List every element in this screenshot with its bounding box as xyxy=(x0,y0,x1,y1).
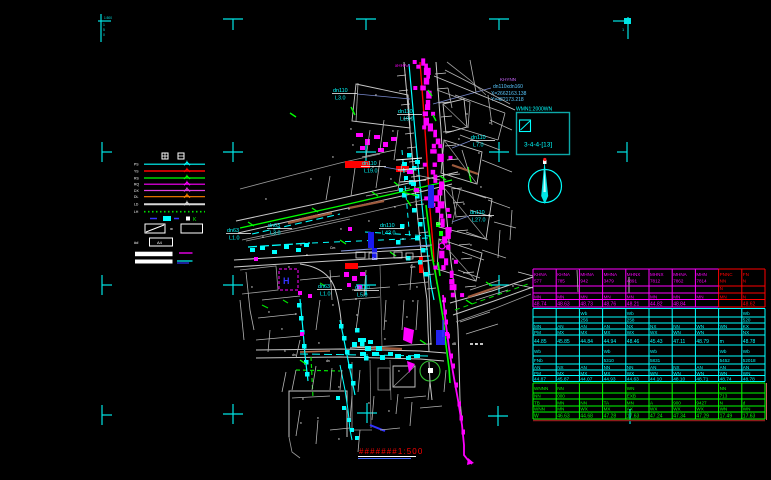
svg-text:Cm: Cm xyxy=(330,246,335,250)
svg-text:NX: NX xyxy=(627,324,633,329)
svg-text:x: x xyxy=(470,243,472,247)
svg-text:44.94: 44.94 xyxy=(604,339,617,345)
svg-text:dn63: dn63 xyxy=(318,284,330,290)
svg-text:5: 5 xyxy=(103,28,105,32)
svg-text:x: x xyxy=(302,397,304,401)
svg-text:942: 942 xyxy=(580,279,588,284)
svg-text:1: 1 xyxy=(103,23,105,27)
svg-text:48.71: 48.71 xyxy=(696,376,708,382)
svg-text:Wb: Wb xyxy=(720,349,727,354)
svg-text:L5.0: L5.0 xyxy=(357,293,368,299)
svg-text:PNNC: PNNC xyxy=(720,272,734,277)
svg-text:WN: WN xyxy=(720,407,728,412)
svg-text:577: 577 xyxy=(534,279,542,284)
svg-text:WX: WX xyxy=(650,330,657,335)
svg-text:AN: AN xyxy=(696,365,702,370)
svg-text:PS: PS xyxy=(134,163,139,167)
svg-text:WN: WN xyxy=(627,386,635,391)
svg-text:AN: AN xyxy=(580,324,586,329)
svg-text:x: x xyxy=(288,265,290,269)
svg-text:WX: WX xyxy=(673,407,680,412)
svg-text:x: x xyxy=(306,253,308,257)
svg-text:x: x xyxy=(394,205,396,209)
svg-text:dn110: dn110 xyxy=(355,285,370,291)
svg-text:MX: MX xyxy=(557,330,564,335)
svg-text:DL: DL xyxy=(134,195,138,199)
svg-text:NN: NN xyxy=(673,324,680,329)
svg-text:dn: dn xyxy=(326,359,330,363)
svg-text:x: x xyxy=(402,237,404,241)
svg-text:NX: NX xyxy=(673,365,679,370)
svg-text:AX: AX xyxy=(627,407,633,412)
svg-text:x: x xyxy=(458,137,460,141)
svg-text:dn63: dn63 xyxy=(268,223,280,229)
svg-text:520: 520 xyxy=(743,318,751,323)
svg-text:W: W xyxy=(534,414,539,420)
svg-text:48.21: 48.21 xyxy=(627,302,640,308)
svg-text:Wb: Wb xyxy=(650,349,657,354)
svg-text:44.93: 44.93 xyxy=(604,376,616,382)
svg-text:x: x xyxy=(330,279,332,283)
svg-text:256: 256 xyxy=(580,318,588,323)
svg-text:=: = xyxy=(170,227,173,233)
svg-text:MHNX: MHNX xyxy=(627,272,641,277)
svg-text:MN: MN xyxy=(696,295,703,300)
svg-text:WN: WN xyxy=(696,371,704,376)
svg-text:44.68: 44.68 xyxy=(580,414,593,420)
svg-text:44.07: 44.07 xyxy=(580,376,592,382)
svg-text:x: x xyxy=(317,416,319,420)
svg-text:N: N xyxy=(720,401,723,406)
svg-text:WN: WN xyxy=(720,371,728,376)
svg-text:NN: NN xyxy=(604,365,611,370)
svg-text:x: x xyxy=(406,315,408,319)
svg-text:x: x xyxy=(352,143,354,147)
svg-text:44.82: 44.82 xyxy=(650,302,663,308)
svg-text:NX: NX xyxy=(650,324,656,329)
svg-text:dn110: dn110 xyxy=(380,223,395,229)
svg-text:47.34: 47.34 xyxy=(673,414,686,420)
svg-text:x: x xyxy=(318,341,320,345)
svg-text:48.63: 48.63 xyxy=(557,302,570,308)
svg-text:MX: MX xyxy=(604,330,611,335)
svg-text:AN: AN xyxy=(580,365,586,370)
svg-text:WX: WX xyxy=(696,407,703,412)
svg-text:47.11: 47.11 xyxy=(673,339,685,345)
svg-text:5310: 5310 xyxy=(604,358,615,363)
svg-text:7862: 7862 xyxy=(673,279,684,284)
svg-text:46.63: 46.63 xyxy=(557,414,570,420)
svg-text:x: x xyxy=(475,342,477,346)
svg-text:KHNA: KHNA xyxy=(534,272,548,277)
svg-text:9427: 9427 xyxy=(696,401,707,406)
svg-text:PM: PM xyxy=(534,371,541,376)
svg-text:MN: MN xyxy=(627,295,634,300)
svg-text:YS: YS xyxy=(134,170,139,174)
svg-text:L19.0: L19.0 xyxy=(364,169,378,175)
svg-text:900: 900 xyxy=(673,401,681,406)
svg-text:N: N xyxy=(743,279,746,284)
svg-text:NN: NN xyxy=(720,386,727,391)
svg-text:MN: MN xyxy=(557,407,564,412)
svg-text:17.63: 17.63 xyxy=(743,414,756,420)
svg-text:dn110: dn110 xyxy=(470,210,485,216)
svg-text:WNNN: WNNN xyxy=(534,386,548,391)
svg-text:x: x xyxy=(251,285,253,289)
svg-text:x: x xyxy=(265,197,267,201)
svg-text:WMN1:2000WN: WMN1:2000WN xyxy=(516,107,553,113)
svg-text:LD: LD xyxy=(134,203,139,207)
svg-text:48.74: 48.74 xyxy=(720,376,732,382)
svg-text:x: x xyxy=(480,185,482,189)
svg-text:x: x xyxy=(332,155,334,159)
svg-text:WN: WN xyxy=(696,324,704,329)
svg-text:MN: MN xyxy=(580,295,587,300)
svg-text:dn110: dn110 xyxy=(398,109,413,115)
svg-text:MN: MN xyxy=(627,401,634,406)
svg-text:WX: WX xyxy=(627,371,634,376)
svg-text:3-4-4-[13]: 3-4-4-[13] xyxy=(524,142,552,149)
svg-text:5452: 5452 xyxy=(720,358,731,363)
svg-text:PM: PM xyxy=(534,330,541,335)
svg-text:x: x xyxy=(338,385,340,389)
svg-text:L3.0: L3.0 xyxy=(270,231,281,237)
svg-text:4891: 4891 xyxy=(627,279,638,284)
svg-text:MX: MX xyxy=(580,330,587,335)
svg-text:Cm: Cm xyxy=(410,265,415,269)
svg-text:x: x xyxy=(385,319,387,323)
svg-text:##: ## xyxy=(134,240,139,245)
svg-text:x: x xyxy=(384,337,386,341)
svg-text:dB: dB xyxy=(452,342,457,346)
svg-text:dn110: dn110 xyxy=(333,88,348,94)
svg-text:MN: MN xyxy=(557,295,564,300)
svg-text:x: x xyxy=(478,151,480,155)
svg-text:MN: MN xyxy=(534,295,541,300)
svg-text:48.79: 48.79 xyxy=(696,339,709,345)
svg-text:WN: WN xyxy=(673,330,681,335)
svg-text:WN: WN xyxy=(673,371,681,376)
svg-text:7814: 7814 xyxy=(696,279,707,284)
svg-text:44.84: 44.84 xyxy=(580,339,593,345)
svg-text:47.24: 47.24 xyxy=(650,414,663,420)
svg-text:Wb: Wb xyxy=(604,349,611,354)
svg-text:MX: MX xyxy=(604,371,611,376)
svg-text:x: x xyxy=(310,177,312,181)
svg-text:dn: dn xyxy=(292,353,296,357)
svg-text:x: x xyxy=(452,257,454,261)
svg-text:48.78: 48.78 xyxy=(743,376,755,382)
svg-text:AN: AN xyxy=(604,324,610,329)
svg-text:x: x xyxy=(295,312,297,316)
svg-text:48.10: 48.10 xyxy=(673,376,685,382)
svg-text:dn110: dn110 xyxy=(362,161,377,167)
svg-text:TB: TB xyxy=(534,401,540,406)
svg-text:dn63: dn63 xyxy=(227,228,239,234)
svg-text:MX: MX xyxy=(604,407,611,412)
svg-text:x: x xyxy=(488,213,490,217)
svg-text:3479: 3479 xyxy=(604,279,615,284)
svg-text:RS: RS xyxy=(134,177,139,181)
svg-text:MHNX: MHNX xyxy=(650,272,664,277)
svg-text:47.28: 47.28 xyxy=(604,414,617,420)
svg-text:x: x xyxy=(412,299,414,303)
svg-text:MN: MN xyxy=(650,295,657,300)
svg-text:x: x xyxy=(284,349,286,353)
svg-text:45.87: 45.87 xyxy=(557,376,569,382)
svg-text:48.62: 48.62 xyxy=(743,302,756,308)
svg-text:x: x xyxy=(350,127,352,131)
svg-text:x: x xyxy=(390,177,392,181)
svg-text:WN: WN xyxy=(743,371,751,376)
svg-text:45.43: 45.43 xyxy=(650,339,663,345)
svg-text:x: x xyxy=(398,369,400,373)
svg-text:Wb: Wb xyxy=(743,311,750,316)
svg-text:MN: MN xyxy=(534,324,541,329)
svg-text:dn110xdn160: dn110xdn160 xyxy=(493,84,523,90)
svg-text:NN: NN xyxy=(534,394,541,399)
svg-text:48.76: 48.76 xyxy=(604,302,617,308)
svg-text:TA: TA xyxy=(604,401,610,406)
svg-text:AN: AN xyxy=(720,365,726,370)
svg-text:Wb: Wb xyxy=(743,349,750,354)
svg-text:x: x xyxy=(348,207,350,211)
svg-text:WN: WN xyxy=(696,330,704,335)
svg-text:258: 258 xyxy=(627,318,635,323)
svg-text:H: H xyxy=(283,276,290,286)
svg-text:x: x xyxy=(332,303,334,307)
svg-text:WN: WN xyxy=(720,324,728,329)
svg-text:WN: WN xyxy=(650,371,658,376)
svg-text:FN: FN xyxy=(743,272,749,277)
svg-text:d: d xyxy=(743,401,746,406)
svg-text:000: 000 xyxy=(557,394,565,399)
svg-text:KX: KX xyxy=(743,324,749,329)
svg-text:N: N xyxy=(743,295,746,300)
svg-text:AN: AN xyxy=(557,324,563,329)
svg-text:x: x xyxy=(338,437,340,441)
svg-text:Wb: Wb xyxy=(627,311,634,316)
svg-text:48.84: 48.84 xyxy=(673,302,686,308)
svg-text:L3.0: L3.0 xyxy=(335,96,346,102)
svg-text:x: x xyxy=(268,310,270,314)
svg-text:KHYNN: KHYNN xyxy=(500,77,516,82)
svg-text:L19.0: L19.0 xyxy=(400,117,414,123)
svg-text:48.74: 48.74 xyxy=(534,302,547,308)
svg-text:x: x xyxy=(466,112,468,116)
svg-text:5831: 5831 xyxy=(650,358,661,363)
svg-text:x: x xyxy=(392,129,394,133)
svg-text:MN: MN xyxy=(604,295,611,300)
svg-text:x: x xyxy=(368,219,370,223)
svg-text:x: x xyxy=(489,121,491,125)
svg-text:MHNA: MHNA xyxy=(673,272,687,277)
svg-text:dn110: dn110 xyxy=(471,135,486,141)
svg-text:x: x xyxy=(463,202,465,206)
svg-text:#######1:500: #######1:500 xyxy=(359,447,423,456)
svg-text:WNN: WNN xyxy=(534,407,545,412)
svg-text:Wb: Wb xyxy=(534,349,541,354)
svg-text:NN: NN xyxy=(627,365,634,370)
svg-text:MHNA: MHNA xyxy=(580,272,594,277)
svg-text:xHHAA: xHHAA xyxy=(395,63,411,68)
svg-text:x: x xyxy=(442,299,444,303)
svg-text:44.63: 44.63 xyxy=(627,376,639,382)
svg-text:48.78: 48.78 xyxy=(743,339,756,345)
svg-text:WX: WX xyxy=(580,407,587,412)
svg-text:x: x xyxy=(356,313,358,317)
svg-text:MHNA: MHNA xyxy=(604,272,618,277)
svg-text:L7.0: L7.0 xyxy=(473,143,484,149)
svg-text:x: x xyxy=(388,409,390,413)
svg-text:KHNA: KHNA xyxy=(557,272,571,277)
svg-text:x: x xyxy=(368,401,370,405)
svg-text:AN: AN xyxy=(650,365,656,370)
svg-text:MX: MX xyxy=(557,371,564,376)
svg-text:FNb: FNb xyxy=(534,358,543,363)
svg-text:AN: AN xyxy=(743,365,749,370)
svg-text:48.46: 48.46 xyxy=(627,339,640,345)
svg-text:45.85: 45.85 xyxy=(557,339,570,345)
svg-text:MN: MN xyxy=(720,295,727,300)
svg-text:Wb: Wb xyxy=(580,311,587,316)
svg-text:WX: WX xyxy=(627,330,634,335)
svg-text:WN: WN xyxy=(743,407,751,412)
svg-text:785: 785 xyxy=(557,279,565,284)
svg-text:L43.0: L43.0 xyxy=(382,231,396,237)
svg-text:713: 713 xyxy=(720,394,728,399)
svg-text:44.10: 44.10 xyxy=(650,376,662,382)
svg-text:x: x xyxy=(340,227,342,231)
svg-text:MN: MN xyxy=(557,401,564,406)
svg-text:RQ: RQ xyxy=(134,183,139,187)
svg-text:LH: LH xyxy=(134,210,139,214)
svg-text:N: N xyxy=(720,286,723,291)
svg-text:44.87: 44.87 xyxy=(534,376,546,382)
svg-text:DX: DX xyxy=(134,189,139,193)
svg-text:x: x xyxy=(430,342,432,346)
svg-text:x: x xyxy=(355,297,357,301)
svg-text:MN: MN xyxy=(673,295,680,300)
svg-text:x: x xyxy=(262,235,264,239)
svg-text:x: x xyxy=(512,284,514,288)
svg-text:Dm: Dm xyxy=(372,257,377,261)
svg-text:44.85: 44.85 xyxy=(534,339,547,345)
svg-text:NN: NN xyxy=(720,279,727,284)
svg-text:1:500: 1:500 xyxy=(104,16,112,20)
svg-text:NX: NX xyxy=(743,330,749,335)
svg-text:47.29: 47.29 xyxy=(696,414,709,420)
svg-text:MX: MX xyxy=(580,371,587,376)
svg-text:x: x xyxy=(416,285,418,289)
svg-text:0: 0 xyxy=(103,33,105,37)
svg-text:NX: NX xyxy=(557,365,563,370)
svg-text:52018: 52018 xyxy=(743,358,756,363)
svg-text:7812: 7812 xyxy=(650,279,661,284)
svg-text:AN: AN xyxy=(534,365,540,370)
svg-text:L27.0: L27.0 xyxy=(472,218,486,224)
svg-text:x: x xyxy=(300,243,302,247)
svg-text:x: x xyxy=(375,93,377,97)
svg-text:x: x xyxy=(300,421,302,425)
svg-text:WX: WX xyxy=(650,407,657,412)
svg-text:48.73: 48.73 xyxy=(580,302,593,308)
svg-text:EXB: EXB xyxy=(627,394,636,399)
svg-text:L1.0: L1.0 xyxy=(320,292,331,298)
svg-text:17.63: 17.63 xyxy=(627,414,640,420)
svg-text:17.49: 17.49 xyxy=(720,414,733,420)
svg-text:x: x xyxy=(281,327,283,331)
svg-text:NN: NN xyxy=(557,386,564,391)
svg-text:NN: NN xyxy=(580,401,587,406)
svg-text:L1.0: L1.0 xyxy=(229,236,240,242)
svg-text:CB: CB xyxy=(436,222,441,226)
svg-text:m: m xyxy=(720,339,724,345)
svg-text:Y=482173.218: Y=482173.218 xyxy=(491,97,524,103)
svg-text:A4: A4 xyxy=(157,240,163,245)
svg-text:MHN: MHN xyxy=(696,272,706,277)
